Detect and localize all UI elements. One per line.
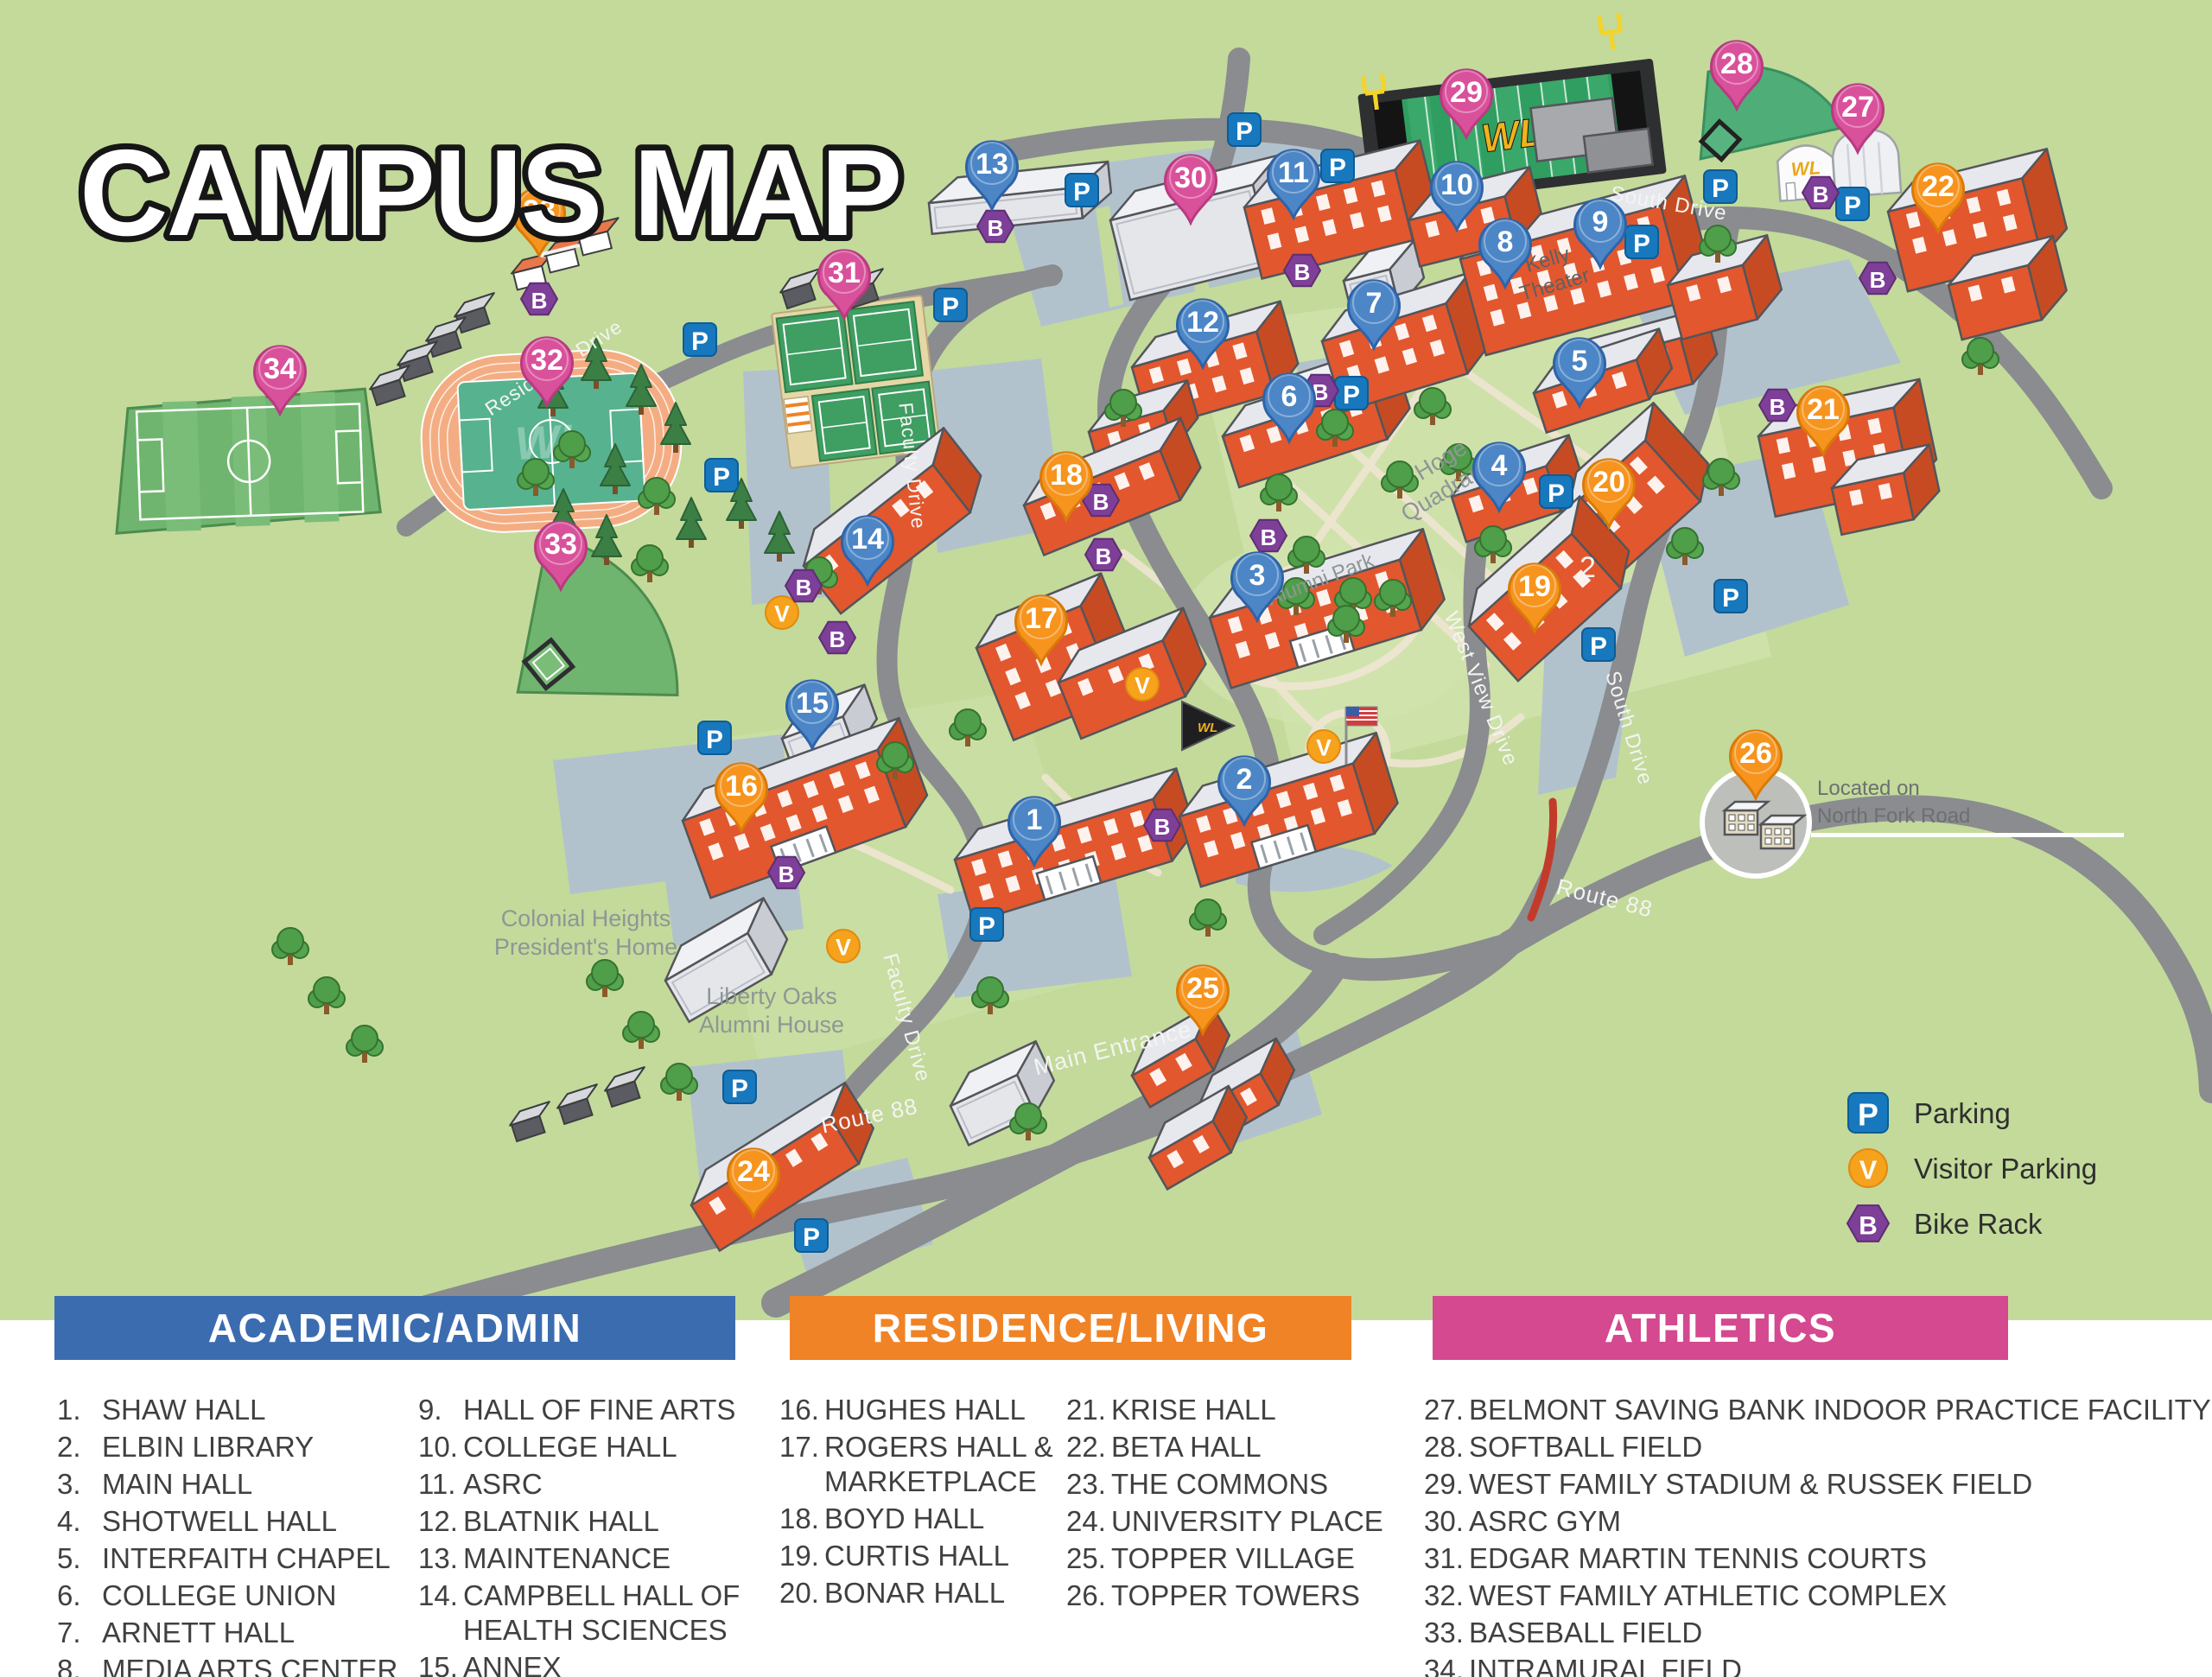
list-item: 18.BOYD HALL [779,1502,1066,1536]
svg-text:P: P [1548,480,1565,508]
section-header-athletics: ATHLETICS [1433,1296,2008,1360]
svg-text:25: 25 [1186,972,1219,1005]
svg-text:6: 6 [1281,380,1298,413]
list-column: 16.HUGHES HALL17.ROGERS HALL & MARKETPLA… [779,1393,1066,1613]
svg-text:P: P [1712,175,1729,203]
parking-marker: P [1704,170,1737,203]
svg-text:B: B [1096,543,1112,569]
list-item: 22.BETA HALL [1066,1430,1438,1464]
list-item-label: CAMPBELL HALL OF HEALTH SCIENCES [463,1579,774,1648]
list-item-label: ANNEX [463,1650,774,1677]
svg-text:B: B [1870,267,1886,293]
svg-text:P: P [1858,1098,1878,1133]
svg-text:18: 18 [1050,459,1083,492]
section-header-residence: RESIDENCE/LIVING [790,1296,1351,1360]
parking-marker: P [698,721,731,754]
section-header-academic-label: ACADEMIC/ADMIN [208,1305,582,1351]
list-item: 33.BASEBALL FIELD [1424,1616,2212,1650]
list-item-label: BELMONT SAVING BANK INDOOR PRACTICE FACI… [1469,1393,2212,1427]
list-item-number: 12. [418,1504,463,1539]
svg-text:14: 14 [851,523,884,556]
list-item-label: SHOTWELL HALL [102,1504,420,1539]
parking-marker: P [1065,174,1098,206]
svg-text:32: 32 [531,344,563,377]
list-item-number: 22. [1066,1430,1111,1464]
list-item: 26.TOPPER TOWERS [1066,1579,1438,1613]
svg-text:P: P [731,1075,748,1103]
intramural-field [111,389,380,534]
list-item-label: SOFTBALL FIELD [1469,1430,2212,1464]
bike-rack-marker: B [819,622,855,654]
svg-text:1: 1 [1027,804,1043,836]
svg-text:12: 12 [1186,306,1219,339]
list-item: 11.ASRC [418,1467,774,1502]
list-item-label: ELBIN LIBRARY [102,1430,420,1464]
svg-text:B: B [829,626,846,652]
area-label: President's Home [494,934,677,960]
list-item-label: WEST FAMILY ATHLETIC COMPLEX [1469,1579,2212,1613]
campus-map-page: WLWLWLWLLocated onNorth Fork RoadResiden… [0,0,2212,1677]
list-item: 15.ANNEX [418,1650,774,1677]
list-item: 19.CURTIS HALL [779,1539,1066,1573]
svg-text:P: P [1722,584,1739,613]
list-item-number: 3. [57,1467,102,1502]
list-item-number: 25. [1066,1541,1111,1576]
svg-text:5: 5 [1572,345,1588,378]
list-item-label: UNIVERSITY PLACE [1111,1504,1438,1539]
list-item: 9.HALL OF FINE ARTS [418,1393,774,1427]
bike-rack-marker: B [1250,520,1287,552]
list-column: 9.HALL OF FINE ARTS10.COLLEGE HALL11.ASR… [418,1393,774,1677]
svg-text:22: 22 [1922,170,1955,203]
list-item: 14.CAMPBELL HALL OF HEALTH SCIENCES [418,1579,774,1648]
list-item-number: 8. [57,1653,102,1677]
list-item-label: ASRC [463,1467,774,1502]
list-item: 10.COLLEGE HALL [418,1430,774,1464]
list-item-label: BASEBALL FIELD [1469,1616,2212,1650]
area-label: Alumni House [699,1012,844,1038]
visitor-parking-marker: V [1126,668,1159,701]
list-item-number: 32. [1424,1579,1469,1613]
list-item: 3.MAIN HALL [57,1467,420,1502]
svg-text:34: 34 [264,353,296,385]
list-item-number: 14. [418,1579,463,1648]
road-label: 2 [1580,551,1597,584]
svg-text:P: P [1844,192,1861,220]
list-item-number: 9. [418,1393,463,1427]
section-header-athletics-label: ATHLETICS [1605,1305,1836,1351]
list-item: 25.TOPPER VILLAGE [1066,1541,1438,1576]
list-item-label: TOPPER TOWERS [1111,1579,1438,1613]
svg-text:B: B [1859,1211,1878,1240]
parking-marker: P [1714,580,1747,613]
area-label: Liberty Oaks [706,983,837,1009]
legend-visitor-parking-label: Visitor Parking [1914,1153,2097,1185]
list-item-number: 20. [779,1576,824,1610]
list-item: 2.ELBIN LIBRARY [57,1430,420,1464]
list-item-label: INTRAMURAL FIELD [1469,1653,2212,1677]
svg-text:4: 4 [1491,449,1508,482]
svg-text:19: 19 [1518,570,1551,603]
svg-text:15: 15 [796,687,829,720]
list-item-label: INTERFAITH CHAPEL [102,1541,420,1576]
bike-rack-marker: B [768,857,804,889]
list-item-number: 15. [418,1650,463,1677]
bike-rack-marker: B [521,283,557,315]
svg-text:P: P [691,327,709,356]
list-column: 1.SHAW HALL2.ELBIN LIBRARY3.MAIN HALL4.S… [57,1393,420,1677]
list-item: 7.ARNETT HALL [57,1616,420,1650]
svg-text:WL: WL [1198,721,1217,735]
list-item-number: 31. [1424,1541,1469,1576]
parking-marker: P [1335,377,1368,410]
list-item-number: 13. [418,1541,463,1576]
list-item-number: 16. [779,1393,824,1427]
list-item: 24.UNIVERSITY PLACE [1066,1504,1438,1539]
svg-text:P: P [1329,154,1346,182]
list-item: 6.COLLEGE UNION [57,1579,420,1613]
svg-text:B: B [1294,259,1311,285]
list-item: 1.SHAW HALL [57,1393,420,1427]
list-item-label: HUGHES HALL [824,1393,1066,1427]
list-item: 16.HUGHES HALL [779,1393,1066,1427]
bike-rack-marker: B [1144,810,1180,842]
list-column: 21.KRISE HALL22.BETA HALL23.THE COMMONS2… [1066,1393,1438,1616]
svg-text:20: 20 [1592,466,1625,499]
list-item: 21.KRISE HALL [1066,1393,1438,1427]
svg-text:B: B [1261,524,1277,550]
svg-text:P: P [713,463,730,492]
parking-marker: P [723,1070,756,1103]
svg-text:P: P [978,912,995,941]
list-item-number: 2. [57,1430,102,1464]
svg-text:V: V [1859,1154,1878,1185]
svg-text:V: V [1316,735,1332,761]
parking-marker: P [1540,475,1573,508]
list-item-label: BETA HALL [1111,1430,1438,1464]
svg-text:24: 24 [737,1155,770,1188]
list-item-number: 18. [779,1502,824,1536]
list-item: 23.THE COMMONS [1066,1467,1438,1502]
parking-marker: P [683,323,716,356]
list-item: 12.BLATNIK HALL [418,1504,774,1539]
list-item: 8.MEDIA ARTS CENTER [57,1653,420,1677]
svg-text:3: 3 [1249,559,1266,592]
parking-marker: P [1321,149,1354,182]
campus-map: WLWLWLWLLocated onNorth Fork RoadResiden… [0,0,2212,1322]
svg-text:P: P [803,1223,820,1252]
section-header-residence-label: RESIDENCE/LIVING [873,1305,1269,1351]
north-fork-label: Located on [1817,777,1920,800]
page-title: CAMPUS MAP [79,124,900,262]
list-item-label: WEST FAMILY STADIUM & RUSSEK FIELD [1469,1467,2212,1502]
list-item-label: CURTIS HALL [824,1539,1066,1573]
list-item-label: MEDIA ARTS CENTER [102,1653,420,1677]
bike-rack-marker: B [1759,390,1796,422]
list-item-number: 23. [1066,1467,1111,1502]
svg-text:2: 2 [1236,763,1253,796]
parking-marker: P [934,289,967,321]
legend-bike-rack-label: Bike Rack [1914,1208,2043,1240]
list-item-number: 1. [57,1393,102,1427]
list-item-number: 11. [418,1467,463,1502]
svg-text:B: B [988,215,1004,241]
list-item-label: MAIN HALL [102,1467,420,1502]
list-item-number: 30. [1424,1504,1469,1539]
list-item: 17.ROGERS HALL & MARKETPLACE [779,1430,1066,1499]
svg-text:21: 21 [1807,393,1840,426]
bike-rack-marker: B [785,570,822,602]
list-item-label: BLATNIK HALL [463,1504,774,1539]
parking-marker: P [1836,187,1869,220]
parking-marker: P [1582,628,1615,661]
visitor-parking-marker: V [1307,730,1340,763]
svg-text:P: P [1236,118,1253,146]
list-item-label: BONAR HALL [824,1576,1066,1610]
list-item-number: 21. [1066,1393,1111,1427]
list-item-number: 5. [57,1541,102,1576]
parking-marker: P [1228,113,1261,146]
list-item-label: ASRC GYM [1469,1504,2212,1539]
list-item-label: MAINTENANCE [463,1541,774,1576]
list-item-number: 6. [57,1579,102,1613]
svg-text:7: 7 [1366,287,1382,320]
svg-text:B: B [1093,489,1109,515]
svg-text:10: 10 [1440,168,1473,201]
list-item-label: SHAW HALL [102,1393,420,1427]
svg-text:P: P [942,293,959,321]
list-item: 32.WEST FAMILY ATHLETIC COMPLEX [1424,1579,2212,1613]
parking-marker: P [970,908,1003,941]
svg-text:B: B [779,861,795,887]
svg-text:29: 29 [1450,76,1483,109]
list-item-number: 26. [1066,1579,1111,1613]
legend-parking-icon: P [1848,1093,1888,1133]
parking-marker: P [795,1219,828,1252]
svg-text:33: 33 [544,528,577,561]
list-item-number: 24. [1066,1504,1111,1539]
area-label: Colonial Heights [501,905,671,931]
list-item-label: COLLEGE HALL [463,1430,774,1464]
list-item-number: 29. [1424,1467,1469,1502]
svg-text:V: V [1135,673,1150,699]
list-item: 31.EDGAR MARTIN TENNIS COURTS [1424,1541,2212,1576]
list-item-label: COLLEGE UNION [102,1579,420,1613]
svg-text:P: P [1590,632,1607,661]
svg-text:B: B [796,575,812,600]
bike-rack-marker: B [1085,539,1122,571]
svg-text:P: P [1633,230,1650,258]
list-item-number: 7. [57,1616,102,1650]
svg-text:13: 13 [976,148,1008,181]
svg-text:27: 27 [1841,91,1874,124]
svg-text:B: B [1770,394,1786,420]
bike-rack-marker: B [1284,255,1320,287]
list-item: 30.ASRC GYM [1424,1504,2212,1539]
north-fork-label: North Fork Road [1817,804,1970,828]
list-item-label: HALL OF FINE ARTS [463,1393,774,1427]
parking-marker: P [705,459,738,492]
list-item-number: 28. [1424,1430,1469,1464]
bike-rack-marker: B [977,211,1014,243]
svg-text:V: V [836,935,851,961]
svg-text:P: P [1343,381,1360,410]
list-item-label: ARNETT HALL [102,1616,420,1650]
visitor-parking-marker: V [827,930,860,962]
list-item: 34.INTRAMURAL FIELD [1424,1653,2212,1677]
svg-text:11: 11 [1278,156,1309,189]
svg-text:8: 8 [1497,226,1514,258]
svg-text:P: P [706,726,723,754]
svg-text:B: B [1813,181,1829,207]
svg-text:P: P [1073,178,1090,206]
list-item-label: TOPPER VILLAGE [1111,1541,1438,1576]
svg-text:B: B [1154,814,1171,840]
bike-rack-marker: B [1802,177,1839,209]
list-item-label: BOYD HALL [824,1502,1066,1536]
list-item-number: 34. [1424,1653,1469,1677]
list-item: 4.SHOTWELL HALL [57,1504,420,1539]
svg-text:9: 9 [1592,206,1609,238]
bike-rack-marker: B [1859,263,1896,295]
parking-marker: P [1625,226,1658,258]
list-item-label: ROGERS HALL & MARKETPLACE [824,1430,1066,1499]
list-item: 5.INTERFAITH CHAPEL [57,1541,420,1576]
svg-text:28: 28 [1720,48,1753,80]
svg-text:V: V [774,601,790,627]
legend-parking-label: Parking [1914,1097,2011,1129]
list-item: 27.BELMONT SAVING BANK INDOOR PRACTICE F… [1424,1393,2212,1427]
list-item: 29.WEST FAMILY STADIUM & RUSSEK FIELD [1424,1467,2212,1502]
legend-visitor-parking-icon: V [1849,1149,1887,1187]
list-item: 28.SOFTBALL FIELD [1424,1430,2212,1464]
list-item-number: 33. [1424,1616,1469,1650]
list-item-label: EDGAR MARTIN TENNIS COURTS [1469,1541,2212,1576]
list-item-number: 17. [779,1430,824,1499]
list-item-number: 10. [418,1430,463,1464]
list-item: 20.BONAR HALL [779,1576,1066,1610]
list-item-number: 27. [1424,1393,1469,1427]
list-column: 27.BELMONT SAVING BANK INDOOR PRACTICE F… [1424,1393,2212,1677]
svg-text:B: B [531,288,548,314]
list-item: 13.MAINTENANCE [418,1541,774,1576]
list-item-number: 4. [57,1504,102,1539]
svg-text:16: 16 [725,770,758,803]
svg-text:17: 17 [1025,602,1058,635]
list-item-number: 19. [779,1539,824,1573]
section-header-academic: ACADEMIC/ADMIN [54,1296,735,1360]
list-item-label: THE COMMONS [1111,1467,1438,1502]
svg-text:26: 26 [1739,737,1772,770]
svg-text:30: 30 [1174,162,1207,194]
list-item-label: KRISE HALL [1111,1393,1438,1427]
